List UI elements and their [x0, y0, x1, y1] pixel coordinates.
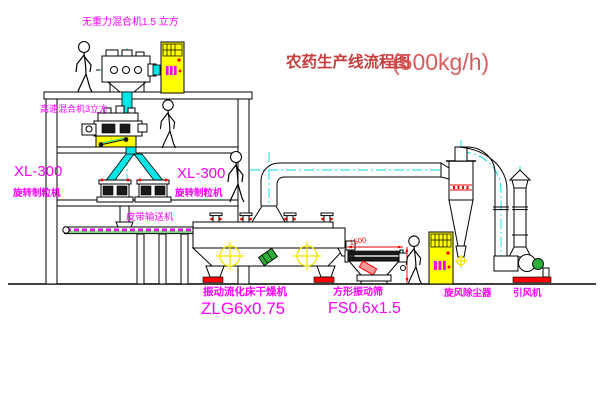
label-dryer-model: ZLG6x0.75 [201, 299, 285, 318]
process-flow-diagram: 1500 [0, 0, 600, 403]
label-gravity-free-mixer: 无重力混合机1.5 立方 [82, 15, 179, 28]
label-sieve-name: 方形振动筛 [333, 285, 383, 298]
label-granulator-mid-name: 旋转制粒机 [174, 187, 223, 199]
label-belt-conveyor: 皮带输送机 [126, 211, 174, 223]
diagram-title-capacity: (500kg/h) [392, 49, 489, 75]
label-cyclone: 旋风除尘器 [443, 287, 492, 299]
control-cabinet-top [161, 42, 184, 93]
label-fan: 引风机 [513, 287, 542, 299]
label-granulator-mid-model: XL-300 [177, 165, 225, 182]
label-dryer-name: 振动流化床干燥机 [203, 285, 287, 298]
label-high-speed-mixer: 高速混合机3立方 [40, 103, 108, 114]
label-sieve-model: FS0.6x1.5 [328, 300, 401, 317]
control-cabinet-ground [429, 232, 453, 284]
label-granulator-left-model: XL-300 [14, 163, 62, 180]
label-granulator-left-name: 旋转制粒机 [12, 187, 61, 199]
